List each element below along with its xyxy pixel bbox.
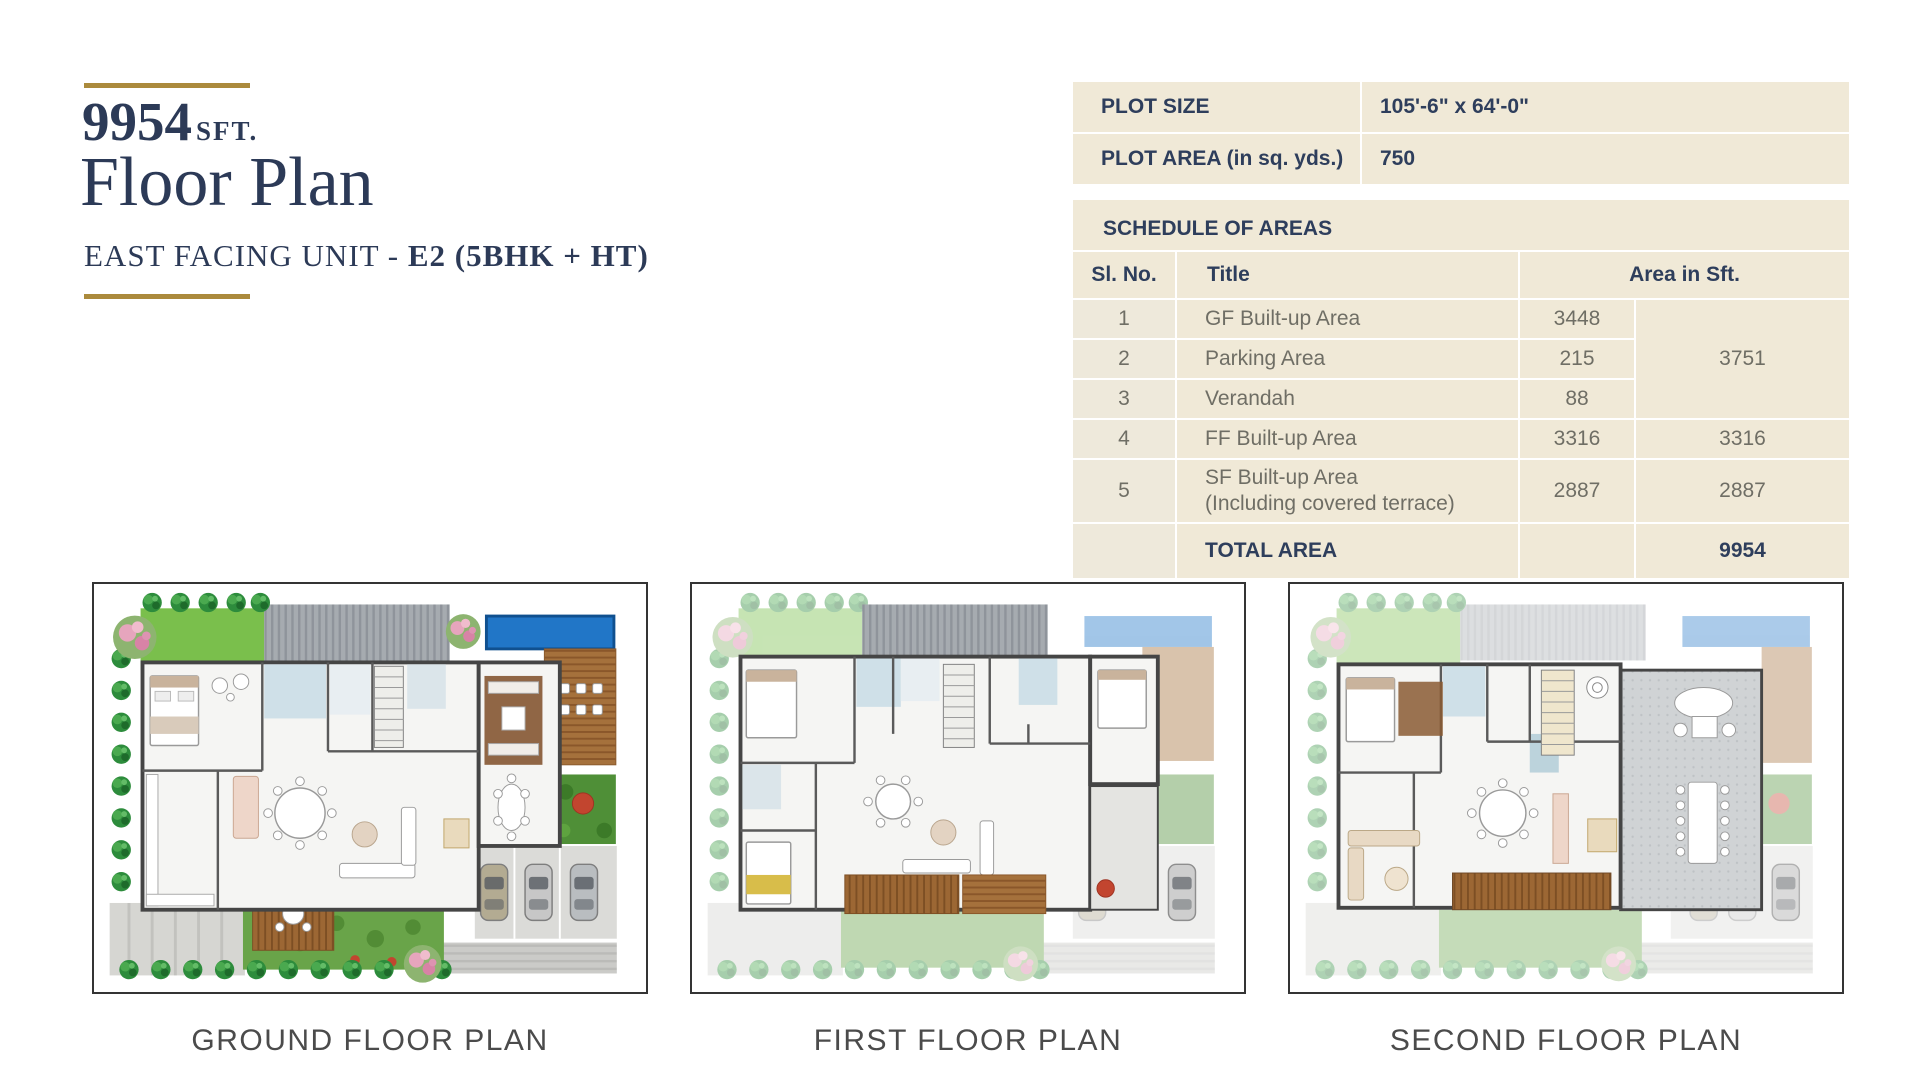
second-floor-plan-image (1295, 589, 1837, 987)
row-slno: 2 (1073, 340, 1175, 378)
row-title: FF Built-up Area (1177, 420, 1518, 458)
total-label: TOTAL AREA (1177, 524, 1518, 578)
total-value: 9954 (1636, 524, 1849, 578)
row-slno: 3 (1073, 380, 1175, 418)
row-area: 3316 (1520, 420, 1634, 458)
row-area: 215 (1520, 340, 1634, 378)
brochure-page: 9954SFT. Floor Plan EAST FACING UNIT - E… (0, 0, 1920, 1089)
area-headline: 9954SFT. (82, 94, 258, 149)
plot-size-value: 105'-6" x 64'-0" (1362, 82, 1849, 132)
total-empty-cell (1520, 524, 1634, 578)
row-title-line2: (Including covered terrace) (1205, 491, 1455, 517)
row-subtotal: 2887 (1636, 460, 1849, 522)
schedule-caption: SCHEDULE OF AREAS (1073, 200, 1849, 250)
second-floor-caption: SECOND FLOOR PLAN (1288, 1022, 1844, 1060)
ground-floor-plan-image (99, 589, 641, 987)
plot-size-label: PLOT SIZE (1073, 82, 1360, 132)
subtitle-unit-code: E2 (5BHK + HT) (408, 238, 649, 273)
merged-subtotal: 3751 (1636, 300, 1849, 418)
row-title: GF Built-up Area (1177, 300, 1518, 338)
gold-rule-top (84, 83, 250, 88)
row-area: 2887 (1520, 460, 1634, 522)
total-row-spacer (1073, 524, 1175, 578)
col-header-slno: Sl. No. (1073, 252, 1175, 298)
second-floor-plan-frame (1288, 582, 1844, 994)
plot-area-label: PLOT AREA (in sq. yds.) (1073, 134, 1360, 184)
first-floor-plan-image (697, 589, 1239, 987)
parked-cars (481, 864, 598, 920)
schedule-grid: Sl. No. Title Area in Sft. 1 GF Built-up… (1073, 252, 1849, 578)
row-title-line1: SF Built-up Area (1205, 465, 1358, 491)
row-slno: 4 (1073, 420, 1175, 458)
row-subtotal: 3316 (1636, 420, 1849, 458)
page-title: Floor Plan (80, 148, 374, 218)
ground-floor-plan-frame (92, 582, 648, 994)
row-area: 88 (1520, 380, 1634, 418)
row-slno: 1 (1073, 300, 1175, 338)
col-header-area: Area in Sft. (1520, 252, 1849, 298)
col-header-title: Title (1177, 252, 1518, 298)
area-unit: SFT. (196, 116, 258, 146)
first-floor-caption: FIRST FLOOR PLAN (690, 1022, 1246, 1060)
page-subtitle: EAST FACING UNIT - E2 (5BHK + HT) (84, 238, 649, 274)
subtitle-prefix: EAST FACING UNIT - (84, 238, 408, 273)
first-floor-plan-frame (690, 582, 1246, 994)
area-value: 9954 (82, 91, 192, 152)
ground-floor-caption: GROUND FLOOR PLAN (92, 1022, 648, 1060)
row-slno: 5 (1073, 460, 1175, 522)
plot-area-value: 750 (1362, 134, 1849, 184)
row-title: Parking Area (1177, 340, 1518, 378)
gold-rule-bottom (84, 294, 250, 299)
row-area: 3448 (1520, 300, 1634, 338)
row-title: SF Built-up Area (Including covered terr… (1177, 460, 1518, 522)
schedule-of-areas-table: SCHEDULE OF AREAS Sl. No. Title Area in … (1073, 200, 1849, 578)
row-title: Verandah (1177, 380, 1518, 418)
plot-info-table: PLOT SIZE 105'-6" x 64'-0" PLOT AREA (in… (1073, 82, 1849, 184)
